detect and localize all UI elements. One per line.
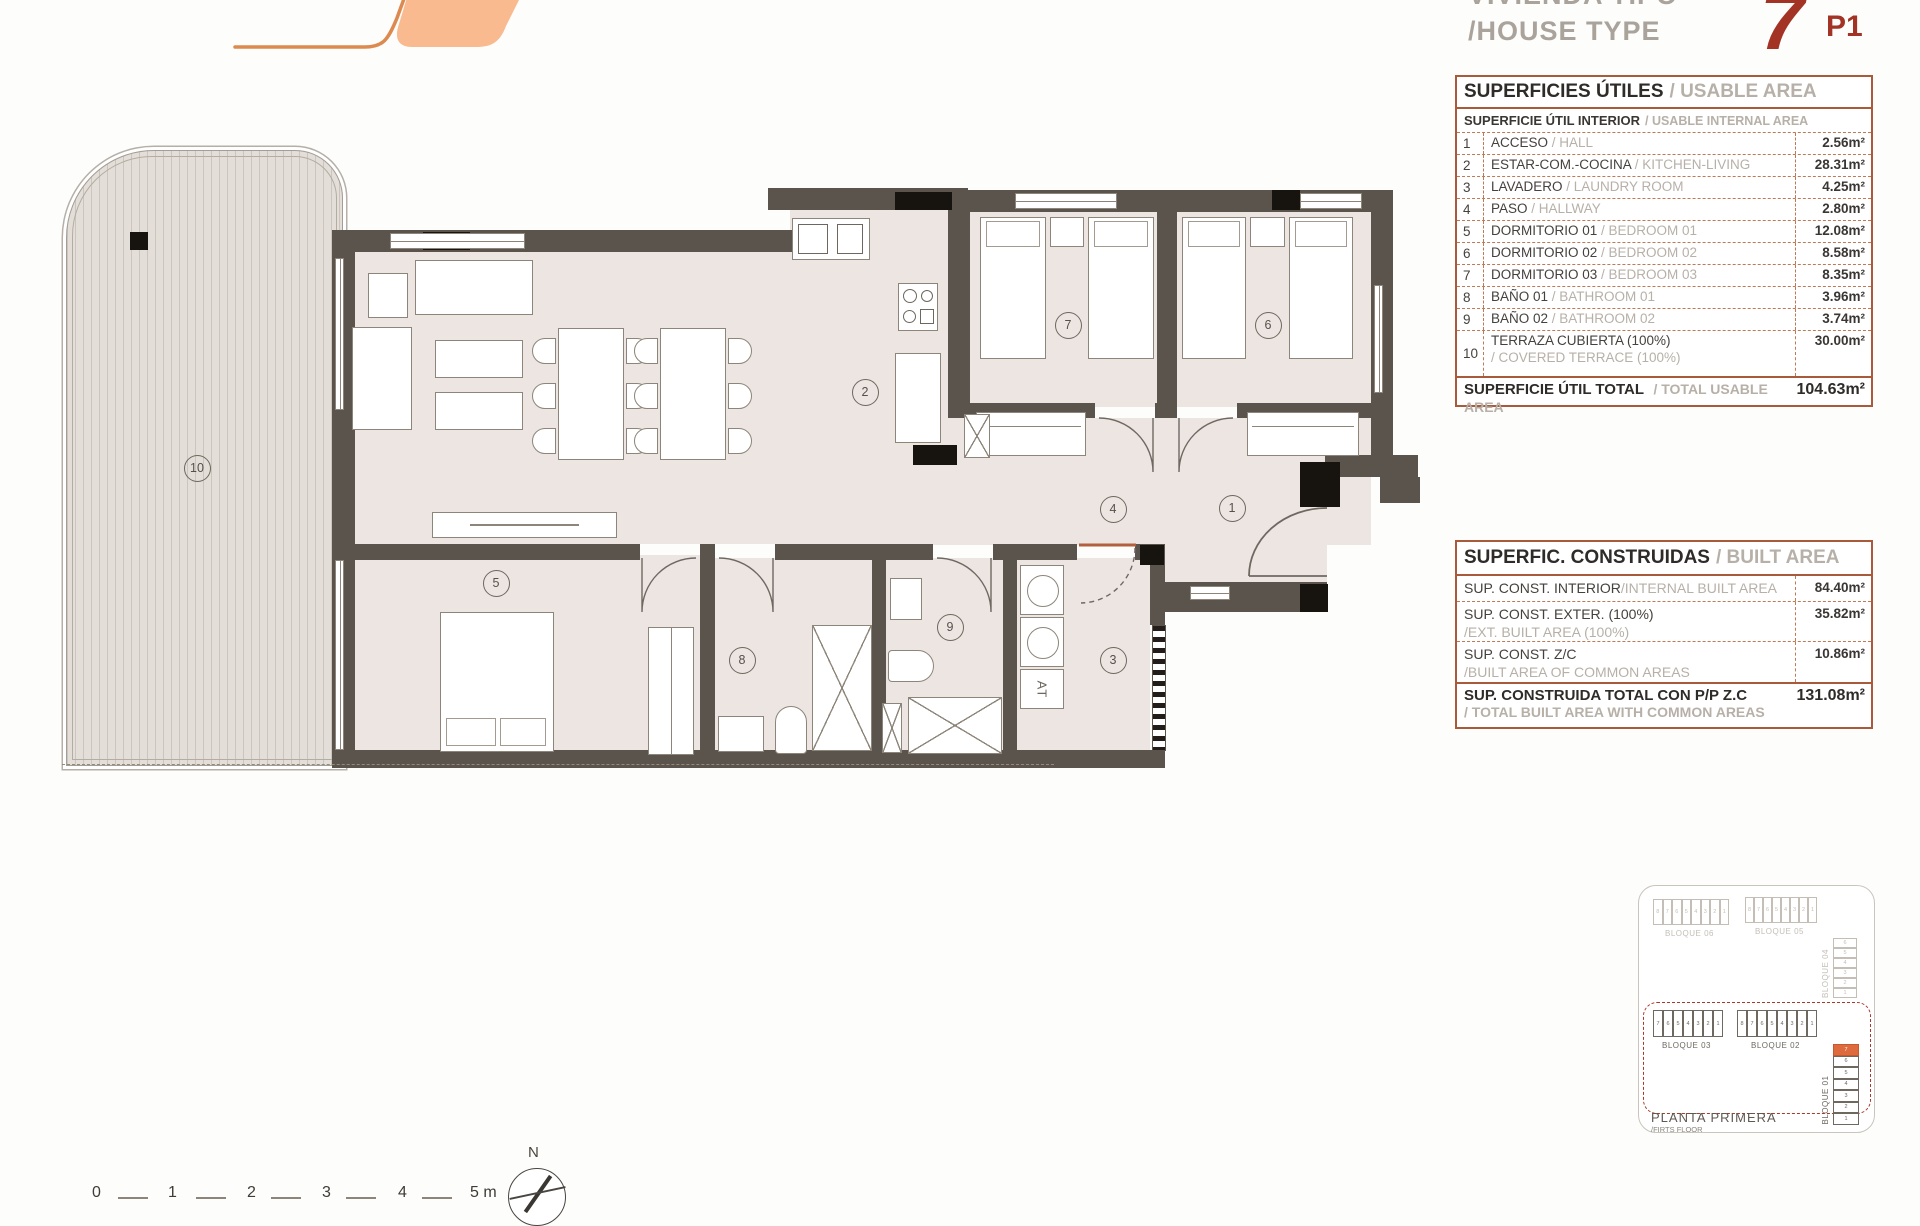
bloque-cell: 7 — [1754, 897, 1763, 923]
bloque-cell: 6 — [1833, 938, 1857, 948]
site-blocks: 87654321BLOQUE 0687654321BLOQUE 05654321… — [1639, 886, 1874, 1132]
bloque-cell: 1 — [1833, 988, 1857, 998]
scale-label: 0 — [92, 1184, 101, 1202]
scale-tick — [196, 1197, 226, 1199]
doors-overlay — [0, 0, 1920, 1200]
bloque-cell: 7 — [1833, 1044, 1859, 1056]
site-plan-caption: PLANTA PRIMERA — [1651, 1110, 1777, 1125]
scale-label: 4 — [398, 1184, 407, 1202]
bedroom1-door — [642, 558, 696, 612]
bloque-cell: 6 — [1663, 1010, 1673, 1037]
bloque-cell: 3 — [1790, 897, 1799, 923]
bloque-label: BLOQUE 06 — [1665, 929, 1714, 938]
bloque-cell: 2 — [1833, 978, 1857, 988]
bloque-cell: 6 — [1833, 1056, 1859, 1068]
laundry-door-dashed — [1081, 548, 1135, 603]
bedroom2-door — [1179, 418, 1233, 472]
bloque-cell: 2 — [1799, 897, 1808, 923]
bloque-cell: 5 — [1673, 1010, 1683, 1037]
bathroom2-door — [937, 558, 991, 612]
bloque-cell: 1 — [1807, 1010, 1817, 1037]
north-label: N — [528, 1144, 539, 1161]
scale-tick — [118, 1197, 148, 1199]
bloque-cell: 4 — [1781, 897, 1790, 923]
bloque-cell: 5 — [1767, 1010, 1777, 1037]
bloque-cell: 5 — [1833, 1067, 1859, 1079]
bloque-cell: 6 — [1672, 899, 1682, 925]
floorplan-sheet: { "header": { "title_es": "VIVIENDA TIPO… — [0, 0, 1920, 1200]
floor-plan: 12345678910 AT — [0, 0, 1920, 1200]
scale-label: 5 m — [470, 1184, 497, 1202]
bloque-cell: 1 — [1833, 1113, 1859, 1125]
bloque-cell: 4 — [1683, 1010, 1693, 1037]
bloque-cell: 2 — [1833, 1102, 1859, 1114]
bedroom3-door — [1099, 418, 1153, 472]
bloque-cell: 4 — [1777, 1010, 1787, 1037]
entrance-door — [1249, 508, 1327, 576]
bloque-cell: 5 — [1682, 899, 1692, 925]
bloque-cell: 4 — [1833, 1079, 1859, 1091]
bloque-cell: 1 — [1808, 897, 1817, 923]
bloque-cell: 1 — [1713, 1010, 1723, 1037]
bloque-cell: 3 — [1693, 1010, 1703, 1037]
scale-label: 2 — [247, 1184, 256, 1202]
bloque-cell: 8 — [1745, 897, 1754, 923]
bloque-cell: 5 — [1833, 948, 1857, 958]
bloque-cell: 1 — [1720, 899, 1730, 925]
bloque-label: BLOQUE 04 — [1821, 938, 1830, 998]
scale-tick — [422, 1197, 452, 1199]
bloque-cell: 3 — [1833, 1090, 1859, 1102]
bloque-label: BLOQUE 01 — [1821, 1044, 1830, 1125]
bloque-cell: 6 — [1763, 897, 1772, 923]
scale-tick — [346, 1197, 376, 1199]
bloque-cell: 4 — [1691, 899, 1701, 925]
bloque-cell: 8 — [1653, 899, 1663, 925]
bloque-cell: 4 — [1833, 958, 1857, 968]
bloque-cell: 3 — [1833, 968, 1857, 978]
bloque-cell: 7 — [1663, 899, 1673, 925]
bloque-label: BLOQUE 05 — [1755, 927, 1804, 936]
site-key-plan: 87654321BLOQUE 0687654321BLOQUE 05654321… — [1638, 885, 1875, 1133]
scale-label: 3 — [322, 1184, 331, 1202]
bloque-label: BLOQUE 02 — [1751, 1041, 1800, 1050]
bloque-cell: 2 — [1797, 1010, 1807, 1037]
site-plan-caption-en: /FIRTS FLOOR — [1651, 1125, 1703, 1134]
bloque-cell: 2 — [1710, 899, 1720, 925]
bloque-label: BLOQUE 03 — [1662, 1041, 1711, 1050]
bloque-cell: 2 — [1703, 1010, 1713, 1037]
bloque-cell: 6 — [1757, 1010, 1767, 1037]
bathroom1-door — [719, 558, 773, 612]
bloque-cell: 3 — [1787, 1010, 1797, 1037]
plot-boundary-dashed-line — [62, 764, 1054, 765]
scale-tick — [271, 1197, 301, 1199]
bloque-cell: 5 — [1772, 897, 1781, 923]
bloque-cell: 8 — [1737, 1010, 1747, 1037]
scale-label: 1 — [168, 1184, 177, 1202]
bloque-cell: 7 — [1747, 1010, 1757, 1037]
bloque-cell: 3 — [1701, 899, 1711, 925]
bloque-cell: 7 — [1653, 1010, 1663, 1037]
